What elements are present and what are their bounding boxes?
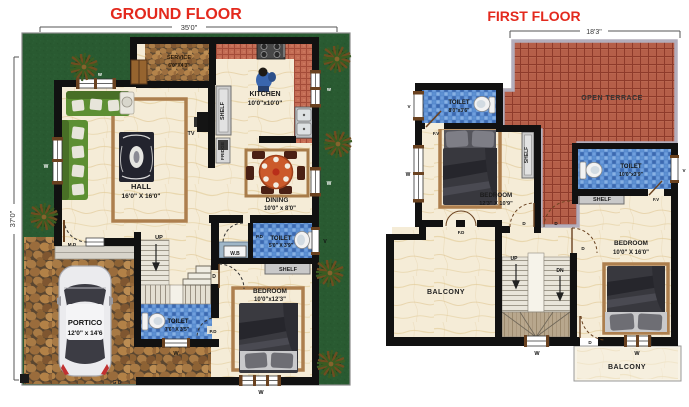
svg-text:BEDROOM: BEDROOM — [480, 192, 512, 199]
svg-text:FIRST FLOOR: FIRST FLOOR — [487, 8, 580, 24]
svg-text:KITCHEN: KITCHEN — [249, 91, 280, 98]
svg-text:G D: G D — [113, 380, 122, 386]
svg-text:TV: TV — [187, 131, 194, 137]
svg-text:SHELF: SHELF — [279, 267, 298, 273]
svg-text:DINING: DINING — [266, 197, 289, 204]
svg-text:W: W — [634, 351, 640, 357]
svg-text:FRIDGE: FRIDGE — [220, 141, 226, 160]
svg-text:w: w — [326, 87, 331, 93]
svg-text:10'0"x3'9": 10'0"x3'9" — [619, 172, 643, 178]
svg-text:BALCONY: BALCONY — [427, 289, 465, 296]
svg-text:6'0"X4'3": 6'0"X4'3" — [168, 63, 190, 69]
svg-text:5'0" X 3'9": 5'0" X 3'9" — [269, 243, 294, 249]
svg-text:w: w — [97, 72, 102, 78]
svg-text:TOILET: TOILET — [448, 100, 470, 106]
svg-text:SERVICE: SERVICE — [167, 55, 191, 61]
svg-text:7'6" X 3'5": 7'6" X 3'5" — [165, 327, 190, 333]
svg-text:35'0": 35'0" — [181, 23, 198, 32]
svg-text:DN: DN — [556, 268, 564, 274]
svg-text:F.V: F.V — [653, 197, 659, 202]
svg-text:W: W — [44, 164, 49, 170]
svg-text:W: W — [258, 390, 264, 396]
svg-text:W: W — [534, 351, 540, 357]
svg-text:8'0"x3'6": 8'0"x3'6" — [448, 108, 470, 114]
svg-text:TOILET: TOILET — [270, 236, 292, 242]
svg-text:10'0"x10'0": 10'0"x10'0" — [248, 100, 283, 107]
svg-text:SHELF: SHELF — [593, 197, 612, 203]
svg-text:12'0" x 14'6: 12'0" x 14'6 — [67, 330, 102, 337]
svg-text:GROUND FLOOR: GROUND FLOOR — [110, 6, 242, 23]
svg-text:W: W — [406, 172, 411, 178]
svg-text:HALL: HALL — [131, 182, 151, 191]
svg-text:10'0"x12'3": 10'0"x12'3" — [254, 297, 286, 303]
svg-text:BALCONY: BALCONY — [608, 364, 646, 371]
svg-text:16'0" X 16'0": 16'0" X 16'0" — [122, 193, 161, 200]
svg-text:OPEN TERRACE: OPEN TERRACE — [581, 95, 643, 102]
svg-text:F.V: F.V — [433, 131, 439, 136]
svg-text:TOILET: TOILET — [620, 164, 642, 170]
svg-text:W.B: W.B — [230, 251, 240, 257]
svg-text:P.D: P.D — [210, 329, 218, 334]
svg-text:UP: UP — [511, 256, 519, 262]
svg-text:M.D: M.D — [68, 242, 77, 247]
svg-text:BEDROOM: BEDROOM — [614, 240, 648, 247]
svg-text:10'0" x 8'0": 10'0" x 8'0" — [264, 206, 296, 212]
svg-text:W: W — [173, 351, 179, 357]
svg-text:D: D — [212, 274, 216, 280]
svg-text:BEDROOM: BEDROOM — [253, 288, 287, 295]
svg-text:SHELF: SHELF — [220, 101, 226, 120]
svg-text:P.D: P.D — [256, 234, 264, 239]
svg-text:TOILET: TOILET — [167, 319, 189, 325]
svg-text:UP: UP — [155, 235, 163, 241]
svg-text:W: W — [327, 181, 332, 187]
svg-text:37'0": 37'0" — [8, 210, 17, 227]
svg-text:12'3" X 10'9": 12'3" X 10'9" — [479, 201, 513, 207]
svg-text:PORTICO: PORTICO — [68, 318, 102, 327]
svg-text:SHELF: SHELF — [524, 147, 530, 163]
svg-text:18'3": 18'3" — [586, 29, 602, 36]
svg-text:10'0" X 16'0": 10'0" X 16'0" — [613, 250, 649, 256]
svg-text:F.D: F.D — [458, 230, 465, 235]
